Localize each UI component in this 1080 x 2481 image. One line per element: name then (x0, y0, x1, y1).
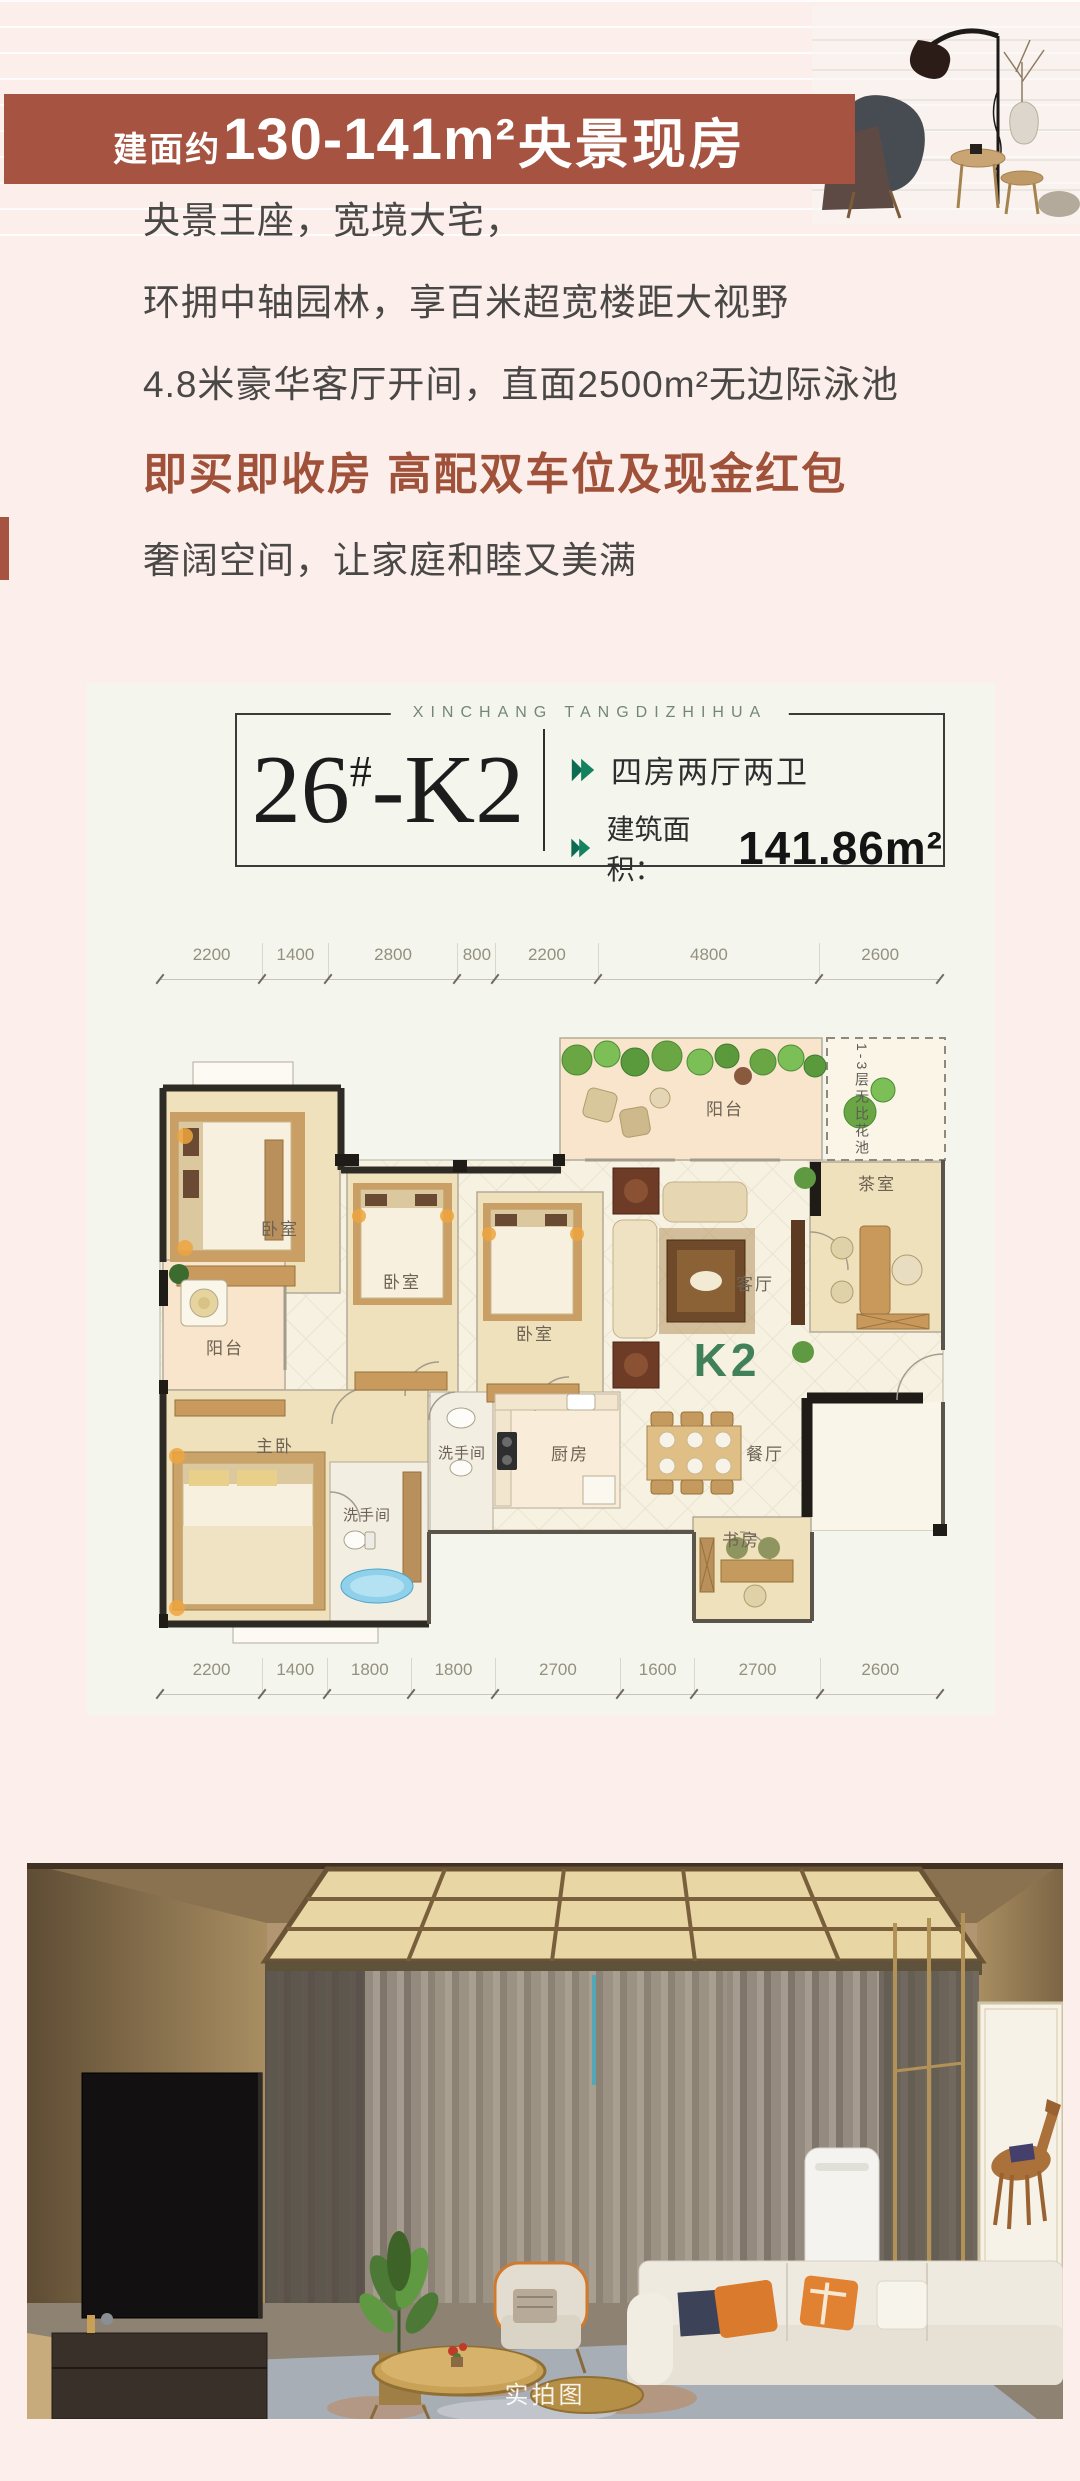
floorplan-drawing: 卧室 卧室 卧室 阳台 茶室 客厅 阳台 主卧 洗手间 洗手间 厨房 餐厅 书房… (115, 1020, 960, 1660)
dining-furniture (647, 1412, 741, 1494)
unit-title: 26#-K2 (237, 734, 539, 846)
room-label-bedroom1: 卧室 (261, 1220, 299, 1239)
dim-value: 1600 (620, 1658, 695, 1694)
room-label-tea: 茶室 (858, 1175, 896, 1194)
room-label-balcony-left: 阳台 (206, 1339, 244, 1358)
intro-line-2: 环拥中轴园林，享百米超宽楼距大视野 (143, 272, 789, 320)
spec-row-area: 建筑面积： 141.86m² (569, 808, 943, 888)
living-room-photo: 实拍图 (27, 1863, 1063, 2419)
room-label-kitchen: 厨房 (551, 1445, 589, 1464)
dim-value: 2200 (161, 1658, 262, 1694)
room-label-living: 客厅 (736, 1275, 774, 1294)
rooms-spec-label: 四房两厅两卫 (611, 747, 809, 792)
unit-number: 26 (252, 736, 350, 844)
dim-value: 2200 (495, 943, 597, 979)
dim-value: 4800 (598, 943, 820, 979)
dim-value: 2700 (694, 1658, 819, 1694)
dim-value: 2600 (819, 943, 940, 979)
dim-value: 2200 (161, 943, 262, 979)
promo-page: 建面约 130-141m² 央景现房 央景王座，宽境大宅， 环拥中轴园林，享百米… (0, 0, 1080, 2481)
photo-watermark: 实拍图 (505, 2382, 586, 2409)
room-label-bedroom2: 卧室 (383, 1273, 421, 1292)
banner-prefix: 建面约 (113, 122, 221, 171)
intro-highlight-line: 即买即收房 高配双车位及现金红包 (143, 438, 847, 486)
unit-code-label: K2 (694, 1334, 761, 1386)
room-label-bath1: 洗手间 (343, 1507, 391, 1524)
room-label-bath2: 洗手间 (438, 1445, 486, 1462)
dim-value: 1400 (262, 1658, 327, 1694)
area-label: 建筑面积： (607, 808, 725, 888)
tv (82, 2073, 262, 2318)
room-label-balcony-top: 阳台 (706, 1100, 744, 1119)
room-label-dining: 餐厅 (746, 1445, 784, 1464)
left-accent-tab (0, 517, 9, 580)
title-divider (543, 729, 545, 851)
dim-value: 1800 (327, 1658, 411, 1694)
garden-note-vertical: 1-3层无比花池 (852, 1043, 872, 1165)
dim-value: 2800 (328, 943, 458, 979)
floorplan-card: XINCHANG TANGDIZHIHUA 26#-K2 四房两厅两卫 (87, 683, 995, 1715)
intro-line-3: 4.8米豪华客厅开间，直面2500m²无边际泳池 (143, 354, 899, 402)
banner-suffix: 央景现房 (518, 100, 746, 179)
room-label-master: 主卧 (256, 1437, 294, 1456)
spec-row-rooms: 四房两厅两卫 (569, 747, 943, 792)
double-arrow-icon (569, 756, 597, 784)
dim-value: 2600 (820, 1658, 940, 1694)
intro-line-1: 央景王座，宽境大宅， (143, 190, 523, 238)
double-arrow-icon (569, 834, 593, 862)
washing-machine-icon (181, 1280, 227, 1326)
headline-banner: 建面约 130-141m² 央景现房 (4, 94, 855, 184)
unit-hash-sup: # (350, 747, 372, 796)
room-label-study: 书房 (722, 1531, 760, 1550)
dimension-row-bottom: 2200 1400 1800 1800 2700 1600 2700 2600 (161, 1658, 940, 1695)
sofa (627, 2261, 1063, 2385)
unit-suffix: -K2 (372, 736, 524, 844)
dim-value: 1800 (411, 1658, 495, 1694)
banner-area-range: 130-141m² (223, 106, 516, 173)
pouf-icon (1038, 191, 1080, 217)
room-label-bedroom3: 卧室 (516, 1325, 554, 1344)
bedroom1-furniture (170, 1112, 305, 1286)
dimension-row-top: 2200 1400 2800 800 2200 4800 2600 (161, 943, 940, 980)
unit-title-box: XINCHANG TANGDIZHIHUA 26#-K2 四房两厅两卫 (235, 713, 945, 867)
dim-value: 1400 (262, 943, 327, 979)
dim-value: 800 (457, 943, 495, 979)
intro-line-5: 奢阔空间，让家庭和睦又美满 (143, 530, 637, 578)
dim-value: 2700 (495, 1658, 620, 1694)
area-value: 141.86m² (738, 821, 943, 875)
